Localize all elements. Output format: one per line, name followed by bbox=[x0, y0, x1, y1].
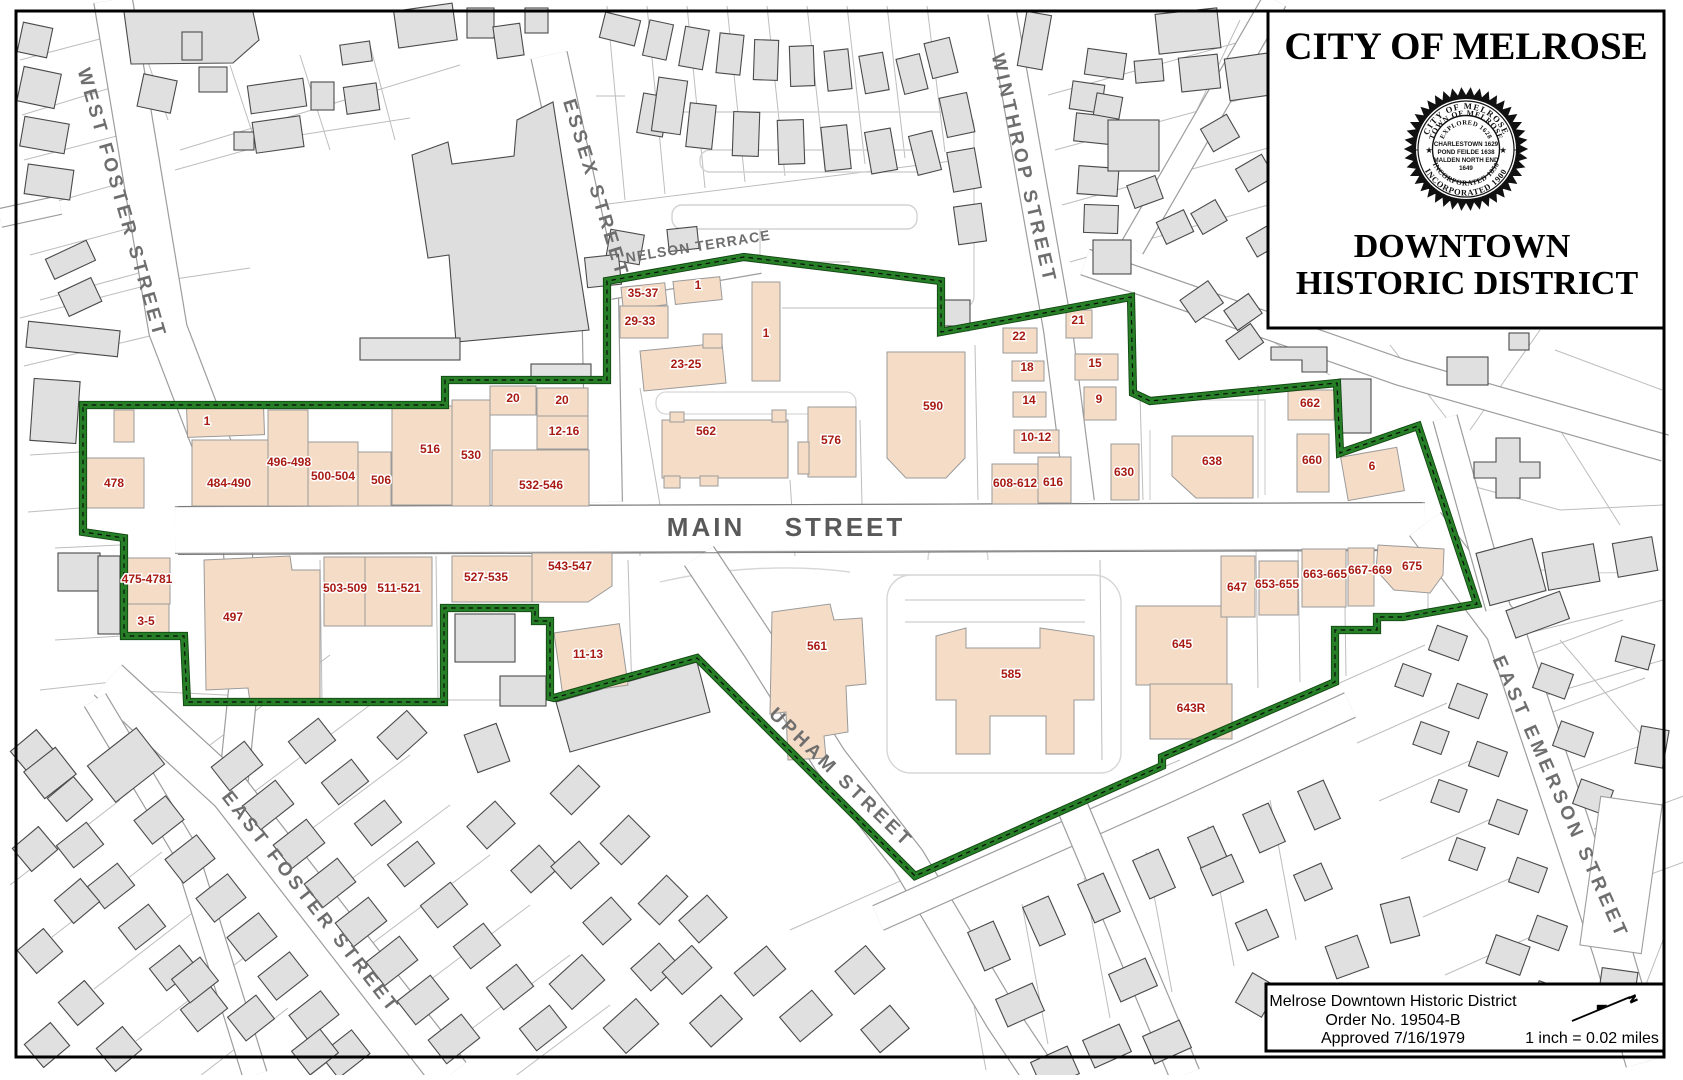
svg-text:630: 630 bbox=[1114, 465, 1134, 479]
svg-text:590: 590 bbox=[923, 399, 943, 413]
svg-text:543-547: 543-547 bbox=[548, 559, 592, 573]
svg-text:14: 14 bbox=[1022, 393, 1036, 407]
svg-text:506: 506 bbox=[371, 473, 391, 487]
svg-text:18: 18 bbox=[1020, 360, 1034, 374]
svg-text:484-490: 484-490 bbox=[207, 476, 251, 490]
svg-text:532-546: 532-546 bbox=[519, 478, 563, 492]
svg-text:585: 585 bbox=[1001, 667, 1021, 681]
svg-text:562: 562 bbox=[696, 424, 716, 438]
svg-text:DOWNTOWN: DOWNTOWN bbox=[1354, 228, 1571, 265]
svg-text:663-665: 663-665 bbox=[1303, 567, 1347, 581]
svg-text:3-5: 3-5 bbox=[137, 614, 155, 628]
svg-text:662: 662 bbox=[1300, 396, 1320, 410]
svg-text:478: 478 bbox=[104, 476, 124, 490]
svg-text:35-37: 35-37 bbox=[628, 286, 659, 300]
svg-text:15: 15 bbox=[1088, 356, 1102, 370]
svg-text:6: 6 bbox=[1369, 459, 1376, 473]
svg-text:Approved 7/16/1979: Approved 7/16/1979 bbox=[1321, 1030, 1465, 1047]
svg-text:Melrose Downtown Historic Dist: Melrose Downtown Historic District bbox=[1269, 993, 1517, 1010]
svg-text:647: 647 bbox=[1227, 580, 1247, 594]
svg-text:530: 530 bbox=[461, 448, 481, 462]
svg-text:496-498: 496-498 bbox=[267, 455, 311, 469]
svg-text:STREET: STREET bbox=[785, 512, 906, 542]
svg-text:20: 20 bbox=[506, 391, 520, 405]
svg-text:20: 20 bbox=[555, 393, 569, 407]
svg-text:643R: 643R bbox=[1177, 701, 1206, 715]
svg-text:675: 675 bbox=[1402, 559, 1422, 573]
svg-text:608-612: 608-612 bbox=[993, 476, 1037, 490]
svg-text:1: 1 bbox=[695, 278, 702, 292]
svg-text:22: 22 bbox=[1012, 329, 1026, 343]
svg-text:475-4781: 475-4781 bbox=[122, 572, 173, 586]
svg-text:CITY OF MELROSE: CITY OF MELROSE bbox=[1284, 25, 1647, 68]
svg-text:1 inch = 0.02 miles: 1 inch = 0.02 miles bbox=[1525, 1030, 1659, 1047]
svg-text:12-16: 12-16 bbox=[549, 424, 580, 438]
svg-text:✛: ✛ bbox=[1514, 147, 1520, 155]
svg-text:21: 21 bbox=[1071, 313, 1085, 327]
svg-text:10-12: 10-12 bbox=[1021, 430, 1052, 444]
svg-text:POND FEILDE 1638: POND FEILDE 1638 bbox=[1437, 149, 1495, 156]
svg-text:1: 1 bbox=[204, 414, 211, 428]
svg-text:MALDEN NORTH END: MALDEN NORTH END bbox=[1434, 157, 1499, 164]
svg-text:503-509: 503-509 bbox=[323, 581, 367, 595]
svg-text:516: 516 bbox=[420, 442, 440, 456]
svg-text:645: 645 bbox=[1172, 637, 1192, 651]
svg-text:11-13: 11-13 bbox=[573, 647, 603, 661]
svg-text:MAIN: MAIN bbox=[667, 512, 745, 542]
svg-text:★: ★ bbox=[1425, 145, 1433, 155]
svg-text:653-655: 653-655 bbox=[1255, 577, 1299, 591]
svg-text:497: 497 bbox=[223, 610, 243, 624]
svg-text:★: ★ bbox=[1499, 145, 1507, 155]
svg-text:527-535: 527-535 bbox=[464, 570, 508, 584]
svg-text:✛: ✛ bbox=[1412, 147, 1418, 155]
svg-text:1: 1 bbox=[763, 326, 770, 340]
svg-text:511-521: 511-521 bbox=[377, 581, 421, 595]
svg-text:667-669: 667-669 bbox=[1348, 563, 1392, 577]
svg-text:HISTORIC DISTRICT: HISTORIC DISTRICT bbox=[1296, 265, 1639, 302]
svg-text:CHARLESTOWN 1629: CHARLESTOWN 1629 bbox=[1434, 141, 1499, 148]
svg-text:9: 9 bbox=[1096, 392, 1103, 406]
svg-text:1649: 1649 bbox=[1459, 165, 1473, 172]
svg-text:29-33: 29-33 bbox=[625, 314, 656, 328]
svg-text:576: 576 bbox=[821, 433, 841, 447]
svg-text:638: 638 bbox=[1202, 454, 1222, 468]
svg-text:500-504: 500-504 bbox=[311, 469, 355, 483]
svg-text:Order No. 19504-B: Order No. 19504-B bbox=[1325, 1012, 1460, 1029]
svg-text:23-25: 23-25 bbox=[671, 357, 702, 371]
svg-text:616: 616 bbox=[1043, 475, 1063, 489]
svg-text:561: 561 bbox=[807, 639, 827, 653]
svg-text:660: 660 bbox=[1302, 453, 1322, 467]
